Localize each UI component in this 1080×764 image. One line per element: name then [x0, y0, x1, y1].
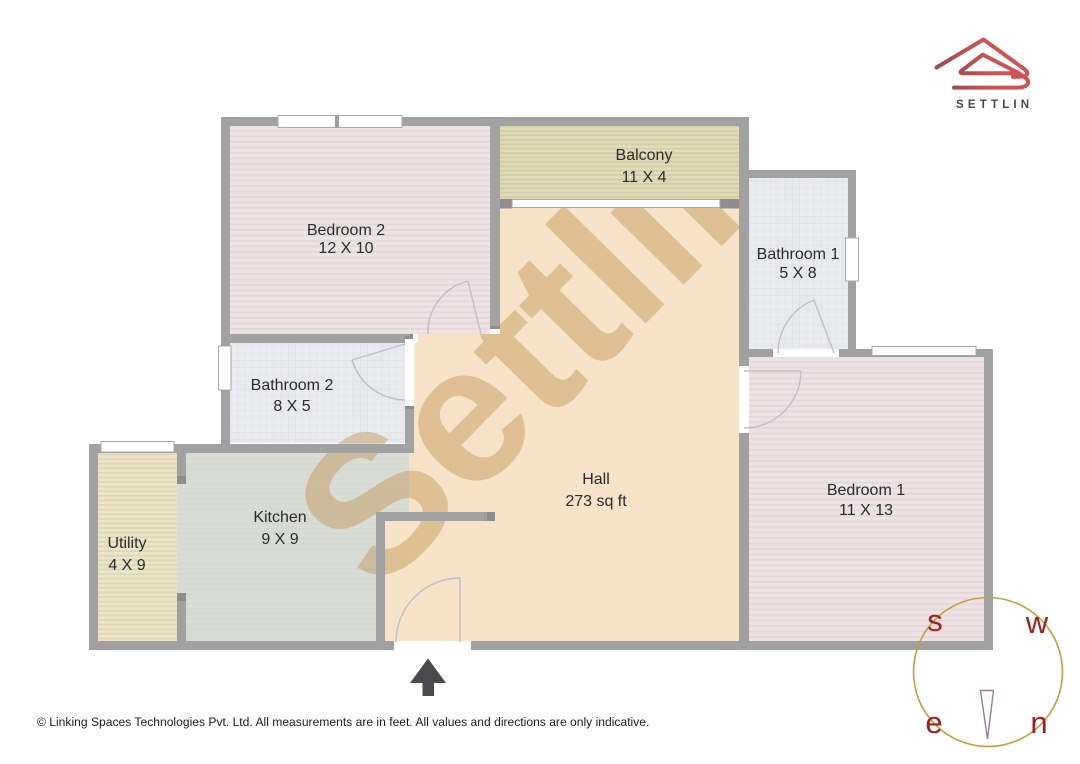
svg-text:12 X 10: 12 X 10: [318, 240, 373, 257]
svg-text:Hall: Hall: [582, 471, 610, 488]
svg-text:Bathroom 2: Bathroom 2: [251, 377, 334, 394]
svg-text:11 X 4: 11 X 4: [621, 169, 666, 186]
svg-text:SETTLIN: SETTLIN: [956, 99, 1033, 111]
svg-text:Bathroom 1: Bathroom 1: [757, 246, 840, 263]
svg-text:Bedroom 1: Bedroom 1: [827, 482, 905, 499]
svg-text:w: w: [1025, 605, 1049, 640]
svg-text:s: s: [927, 603, 943, 638]
svg-text:273 sq ft: 273 sq ft: [565, 493, 627, 510]
svg-text:4 X 9: 4 X 9: [108, 557, 145, 574]
svg-text:n: n: [1030, 705, 1047, 740]
svg-text:9 X 9: 9 X 9: [261, 531, 298, 548]
svg-text:Utility: Utility: [107, 535, 146, 552]
svg-text:Kitchen: Kitchen: [253, 509, 306, 526]
svg-text:8 X 5: 8 X 5: [273, 398, 310, 415]
svg-text:11 X 13: 11 X 13: [839, 502, 893, 519]
svg-text:© Linking Spaces Technologies: © Linking Spaces Technologies Pvt. Ltd. …: [37, 715, 649, 729]
svg-text:Bedroom 2: Bedroom 2: [307, 222, 385, 239]
svg-text:e: e: [925, 705, 942, 740]
svg-text:Balcony: Balcony: [616, 147, 673, 164]
svg-text:5 X 8: 5 X 8: [779, 265, 816, 282]
